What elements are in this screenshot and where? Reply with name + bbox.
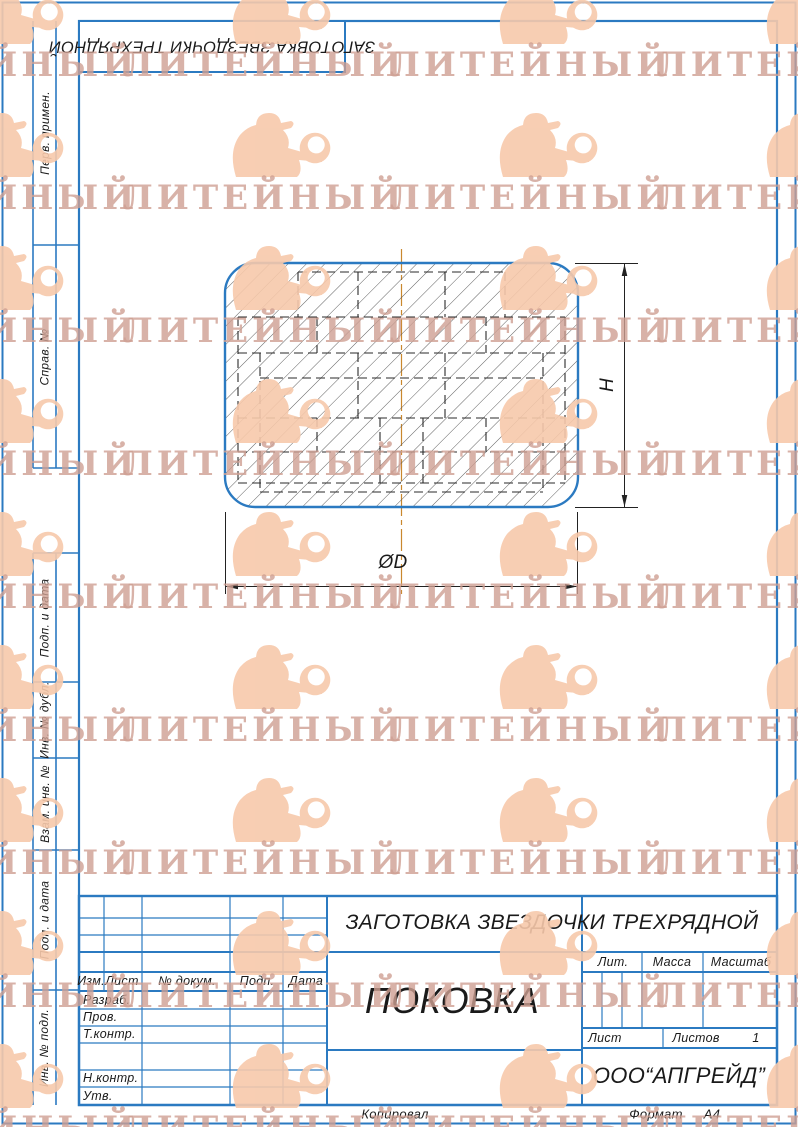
col-podp: Подп. [240,974,275,988]
forging-figure [225,249,638,594]
mass-label: Масса [653,955,691,969]
col-data: Дата [289,974,323,988]
copied-label: Копировал [361,1107,428,1122]
row-utv: Утв. [83,1089,113,1103]
col-ndokum: № докум. [158,974,215,988]
format-value: A4 [704,1107,721,1122]
sidebar-box-inv-dubl: Инв. № дубл. [33,682,56,758]
sheet-label: Лист [588,1031,621,1045]
sidebar-label: Инв. № дубл. [38,681,52,758]
format-label: Формат [629,1107,682,1122]
sidebar-box-sprav-no: Справ. № [33,245,56,468]
drawing-sheet: ЗАГОТОВКА ЗВЕЗДОЧКИ ТРЕХРЯДНОЙ Перв. при… [0,0,798,1127]
sidebar-label: Подп. и дата [38,578,52,657]
hidden-profile-lines [238,272,565,492]
sheets-label: Листов [672,1031,719,1045]
sidebar-box-podp-data-1: Подп. и дата [33,553,56,682]
col-list: Лист [105,974,138,988]
dim-D-label: ØD [378,552,407,574]
sidebar-box-perv-primen: Перв. примен. [33,21,56,245]
sidebar-label: Перв. примен. [38,91,52,175]
part-name: ПОКОВКА [365,980,539,1022]
row-nkontr: Н.контр. [83,1071,138,1085]
row-prov: Пров. [83,1010,117,1024]
inner-frame [79,21,777,1105]
scale-label: Масштаб [711,955,772,969]
dim-H-label: H [597,378,619,392]
blank-outline [225,263,578,507]
sidebar-box-inv-podl: Инв. № подл. [33,990,56,1105]
col-izm: Изм. [77,974,105,988]
row-razrab: Разраб. [83,993,130,1007]
sidebar-label: Подп. и дата [38,881,52,960]
dim-D-arrow-left [226,584,238,590]
company-name: ООО“АПГРЕЙД” [593,1063,765,1089]
top-stamp-text: ЗАГОТОВКА ЗВЕЗДОЧКИ ТРЕХРЯДНОЙ [49,37,375,56]
dim-H-arrow-bottom [622,495,628,507]
sidebar-box-podp-data-2: Подп. и дата [33,850,56,990]
dim-H-arrow-top [622,264,628,276]
sidebar-label: Справ. № [38,328,52,385]
lit-label: Лит. [598,955,628,969]
document-title: ЗАГОТОВКА ЗВЕЗДОЧКИ ТРЕХРЯДНОЙ [346,911,759,935]
dim-D-arrow-right [565,584,577,590]
row-tkontr: Т.контр. [83,1027,136,1041]
sidebar-label: Инв. № подл. [38,1008,52,1086]
sheets-value: 1 [752,1031,759,1045]
sidebar-label: Взам. инв. № [38,765,52,843]
sidebar-box-vzam-inv: Взам. инв. № [33,758,56,850]
